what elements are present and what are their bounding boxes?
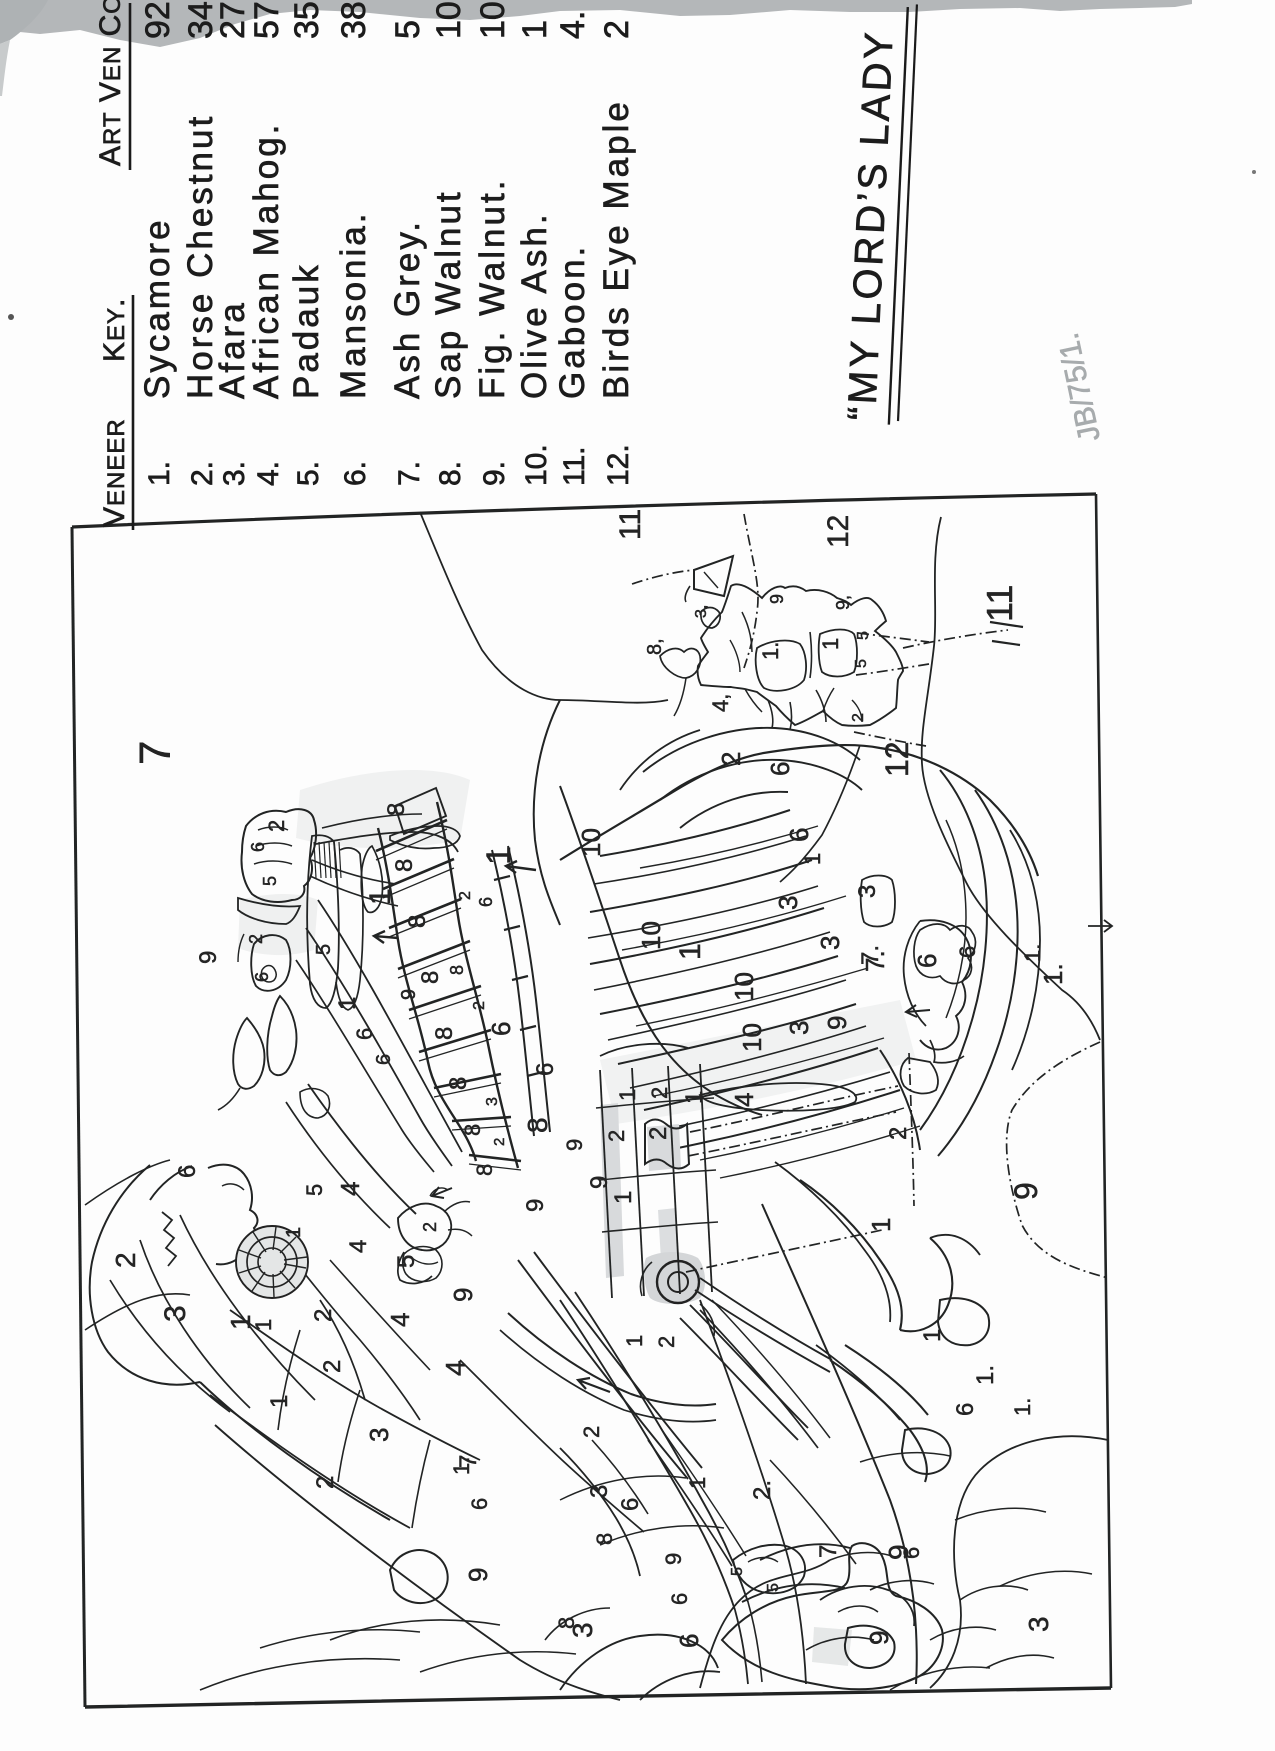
svg-text:1: 1 xyxy=(610,1191,637,1204)
svg-text:2: 2 xyxy=(420,1222,440,1232)
svg-text:5: 5 xyxy=(389,20,427,39)
svg-text:VENEER: VENEER xyxy=(98,418,131,527)
svg-text:4.: 4. xyxy=(554,11,592,39)
svg-text:4.: 4. xyxy=(252,461,285,486)
svg-text:9: 9 xyxy=(822,1016,852,1030)
svg-text:1.: 1. xyxy=(758,642,783,660)
svg-text:3: 3 xyxy=(773,896,803,910)
svg-text:92: 92 xyxy=(139,1,177,39)
svg-text:Mansonia.: Mansonia. xyxy=(334,211,373,399)
svg-text:Sycamore: Sycamore xyxy=(138,217,177,399)
svg-text:9: 9 xyxy=(661,1553,686,1565)
svg-text:12: 12 xyxy=(879,741,915,777)
svg-text:1: 1 xyxy=(615,1089,640,1101)
svg-text:57: 57 xyxy=(248,1,286,39)
svg-text:5: 5 xyxy=(729,1567,746,1576)
svg-text:6: 6 xyxy=(912,954,942,968)
svg-text:1.: 1. xyxy=(143,461,176,486)
svg-text:2: 2 xyxy=(598,20,636,39)
svg-text:7.: 7. xyxy=(393,461,426,486)
svg-text:2: 2 xyxy=(457,891,474,900)
svg-text:10: 10 xyxy=(576,828,606,857)
svg-text:6: 6 xyxy=(955,946,980,958)
svg-text:6: 6 xyxy=(352,1028,377,1040)
svg-text:ART VEN CO: ART VEN CO xyxy=(94,0,127,166)
svg-text:4: 4 xyxy=(729,1093,759,1107)
svg-text:5: 5 xyxy=(302,1184,327,1196)
svg-text:6: 6 xyxy=(674,1634,704,1648)
svg-text:2: 2 xyxy=(716,752,746,766)
svg-text:9: 9 xyxy=(448,1288,478,1302)
svg-text:5: 5 xyxy=(393,1255,420,1268)
svg-text:4: 4 xyxy=(385,1313,415,1327)
svg-text:9: 9 xyxy=(522,1199,549,1212)
svg-text:11.: 11. xyxy=(558,447,591,486)
svg-text:2: 2 xyxy=(471,1001,488,1010)
svg-text:9: 9 xyxy=(767,594,787,604)
svg-text:1: 1 xyxy=(818,638,843,650)
svg-text:7: 7 xyxy=(131,741,180,765)
svg-text:Gaboon.: Gaboon. xyxy=(553,244,592,399)
svg-text:9: 9 xyxy=(398,989,420,1000)
svg-text:6: 6 xyxy=(486,1022,516,1036)
svg-text:38: 38 xyxy=(335,1,373,39)
svg-text:1: 1 xyxy=(622,1335,647,1347)
svg-text:1.: 1. xyxy=(972,1365,999,1385)
svg-text:1: 1 xyxy=(919,1329,946,1342)
svg-text:2.: 2. xyxy=(749,1480,776,1500)
svg-text:9,: 9, xyxy=(833,595,853,610)
svg-text:8: 8 xyxy=(417,971,444,984)
svg-text:4: 4 xyxy=(345,1240,372,1253)
svg-text:2: 2 xyxy=(319,1360,346,1373)
svg-text:3: 3 xyxy=(1023,1616,1054,1632)
svg-text:5: 5 xyxy=(765,1583,782,1592)
svg-text:2: 2 xyxy=(264,820,289,832)
svg-text:Padauk: Padauk xyxy=(287,262,326,399)
svg-text:2: 2 xyxy=(885,1127,912,1140)
svg-text:2: 2 xyxy=(604,1130,629,1142)
svg-text:2: 2 xyxy=(645,1127,672,1140)
svg-text:10.: 10. xyxy=(520,444,553,486)
svg-text:10: 10 xyxy=(729,972,759,1001)
svg-text:6: 6 xyxy=(252,972,272,982)
svg-text:3: 3 xyxy=(159,1305,192,1322)
svg-text:3.: 3. xyxy=(218,461,251,486)
svg-text:7.: 7. xyxy=(857,945,884,965)
svg-text:2: 2 xyxy=(491,1138,508,1146)
svg-text:1: 1 xyxy=(364,888,397,905)
svg-text:8: 8 xyxy=(592,1533,617,1545)
svg-text:Sap Walnut: Sap Walnut xyxy=(429,189,468,399)
svg-text:African Mahog.: African Mahog. xyxy=(247,122,286,399)
svg-text:5: 5 xyxy=(260,876,280,886)
svg-text:6: 6 xyxy=(174,1165,201,1178)
svg-text:6: 6 xyxy=(476,897,496,907)
svg-text:5.: 5. xyxy=(292,461,325,486)
svg-text:6: 6 xyxy=(952,1403,979,1416)
svg-text:6: 6 xyxy=(248,842,268,852)
svg-text:11: 11 xyxy=(979,585,1020,622)
svg-text:8: 8 xyxy=(431,1027,458,1040)
svg-text:7: 7 xyxy=(815,1545,842,1558)
svg-text:9: 9 xyxy=(562,1139,587,1151)
svg-text:2: 2 xyxy=(312,1476,339,1489)
svg-text:1: 1 xyxy=(800,853,825,865)
svg-text:1: 1 xyxy=(681,1091,708,1104)
svg-text:9: 9 xyxy=(195,951,222,964)
svg-text:3: 3 xyxy=(854,885,881,898)
svg-text:9: 9 xyxy=(586,1176,613,1189)
svg-text:12.: 12. xyxy=(602,444,635,486)
svg-text:1.: 1. xyxy=(1020,944,1045,962)
svg-text:2: 2 xyxy=(647,1087,672,1099)
svg-text:8: 8 xyxy=(391,859,418,872)
svg-text:1.: 1. xyxy=(449,1457,474,1475)
svg-text:2: 2 xyxy=(850,713,867,722)
svg-text:3: 3 xyxy=(784,1021,814,1035)
svg-text:107: 107 xyxy=(474,0,512,39)
svg-text:8: 8 xyxy=(445,1077,472,1090)
svg-text:2: 2 xyxy=(310,1309,337,1322)
svg-text:6: 6 xyxy=(765,762,795,776)
svg-text:8.: 8. xyxy=(434,461,467,486)
svg-text:4,: 4, xyxy=(708,694,733,712)
svg-text:4: 4 xyxy=(440,1360,471,1376)
svg-text:2.: 2. xyxy=(186,461,219,486)
svg-text:6: 6 xyxy=(467,1498,492,1510)
svg-text:3: 3 xyxy=(484,1097,501,1106)
svg-text:9.: 9. xyxy=(478,461,511,486)
svg-text:1: 1 xyxy=(283,1227,305,1238)
svg-text:1.: 1. xyxy=(1010,1398,1035,1416)
svg-text:8: 8 xyxy=(383,803,410,816)
svg-text:10: 10 xyxy=(737,1023,767,1052)
svg-text:6: 6 xyxy=(899,1547,924,1559)
svg-text:6: 6 xyxy=(532,1063,559,1076)
svg-text:Ash Grey.: Ash Grey. xyxy=(388,219,427,399)
svg-text:2: 2 xyxy=(246,934,266,944)
svg-text:5: 5 xyxy=(855,631,872,640)
svg-text:5: 5 xyxy=(313,944,335,955)
svg-text:1: 1 xyxy=(266,1395,293,1408)
svg-text:1: 1 xyxy=(685,1477,710,1489)
svg-text:8: 8 xyxy=(460,1124,485,1136)
svg-text:3: 3 xyxy=(364,1428,394,1442)
svg-text:1: 1 xyxy=(334,997,361,1010)
svg-text:6: 6 xyxy=(667,1593,692,1605)
svg-text:35: 35 xyxy=(288,1,326,39)
svg-text:9: 9 xyxy=(1008,1182,1044,1200)
svg-text:1.: 1. xyxy=(1038,963,1068,985)
svg-text:KEY.: KEY. xyxy=(98,298,131,362)
svg-text:6.: 6. xyxy=(339,461,372,486)
svg-text:12: 12 xyxy=(822,515,855,548)
svg-text:1: 1 xyxy=(674,943,707,960)
svg-text:1: 1 xyxy=(866,1218,896,1232)
svg-text:Birds Eye Maple: Birds Eye Maple xyxy=(597,99,636,399)
svg-text:Fig. Walnut.: Fig. Walnut. xyxy=(473,178,512,399)
svg-text:8: 8 xyxy=(472,1164,497,1176)
svg-text:8: 8 xyxy=(522,1117,553,1133)
svg-text:27: 27 xyxy=(214,1,252,39)
svg-text:3,: 3, xyxy=(693,605,710,618)
svg-text:3: 3 xyxy=(586,1485,613,1498)
svg-text:1: 1 xyxy=(516,20,554,39)
svg-text:10: 10 xyxy=(430,1,468,39)
svg-text:3: 3 xyxy=(815,936,845,950)
svg-text:6: 6 xyxy=(784,828,814,842)
svg-text:5: 5 xyxy=(853,659,870,668)
svg-text:4: 4 xyxy=(335,1182,365,1196)
svg-text:8: 8 xyxy=(404,915,431,928)
svg-text:9: 9 xyxy=(463,1568,493,1582)
svg-text:1: 1 xyxy=(251,1319,276,1331)
svg-text:11: 11 xyxy=(614,509,647,540)
svg-text:6: 6 xyxy=(617,1498,644,1511)
svg-text:2: 2 xyxy=(110,1252,141,1268)
svg-text:9: 9 xyxy=(864,1631,894,1645)
svg-text:2: 2 xyxy=(579,1426,604,1438)
svg-text:1: 1 xyxy=(480,846,518,865)
svg-text:8,: 8, xyxy=(644,638,666,655)
svg-text:Olive Ash.: Olive Ash. xyxy=(515,211,554,399)
svg-text:6: 6 xyxy=(373,1054,395,1065)
svg-text:10: 10 xyxy=(636,921,666,950)
svg-text:2: 2 xyxy=(654,1336,679,1348)
svg-text:8: 8 xyxy=(554,1617,579,1629)
svg-text:8: 8 xyxy=(447,965,467,975)
